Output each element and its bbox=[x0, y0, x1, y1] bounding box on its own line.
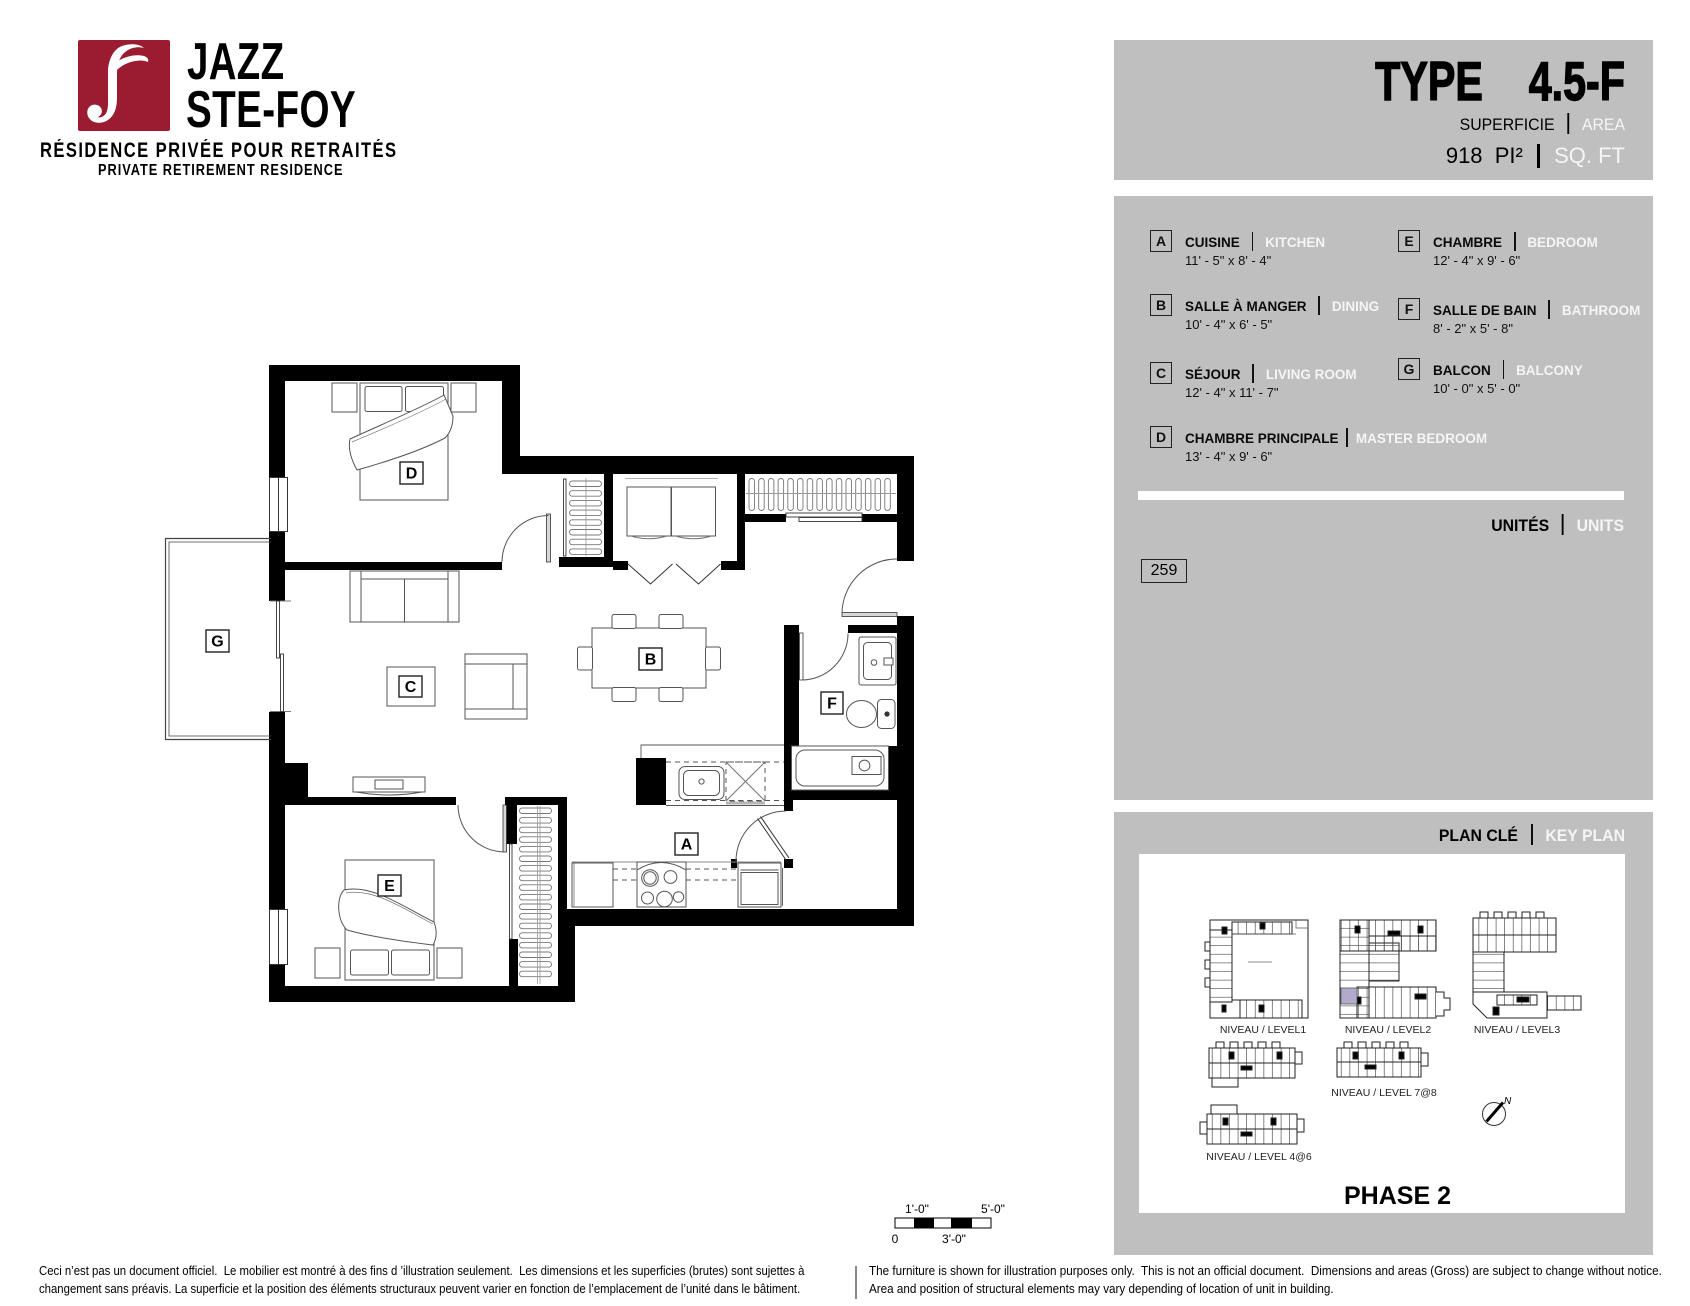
svg-text:D: D bbox=[406, 466, 418, 483]
svg-text:C: C bbox=[405, 679, 417, 696]
svg-text:5'-0": 5'-0" bbox=[981, 1202, 1005, 1216]
svg-text:1'-0": 1'-0" bbox=[905, 1202, 929, 1216]
svg-text:E: E bbox=[384, 878, 395, 895]
svg-text:B: B bbox=[645, 652, 657, 669]
svg-text:G: G bbox=[211, 634, 223, 651]
svg-text:A: A bbox=[681, 837, 693, 854]
svg-text:F: F bbox=[827, 696, 837, 713]
svg-text:3'-0": 3'-0" bbox=[942, 1232, 966, 1246]
svg-text:0: 0 bbox=[892, 1232, 899, 1246]
svg-text:N: N bbox=[1504, 1096, 1512, 1107]
